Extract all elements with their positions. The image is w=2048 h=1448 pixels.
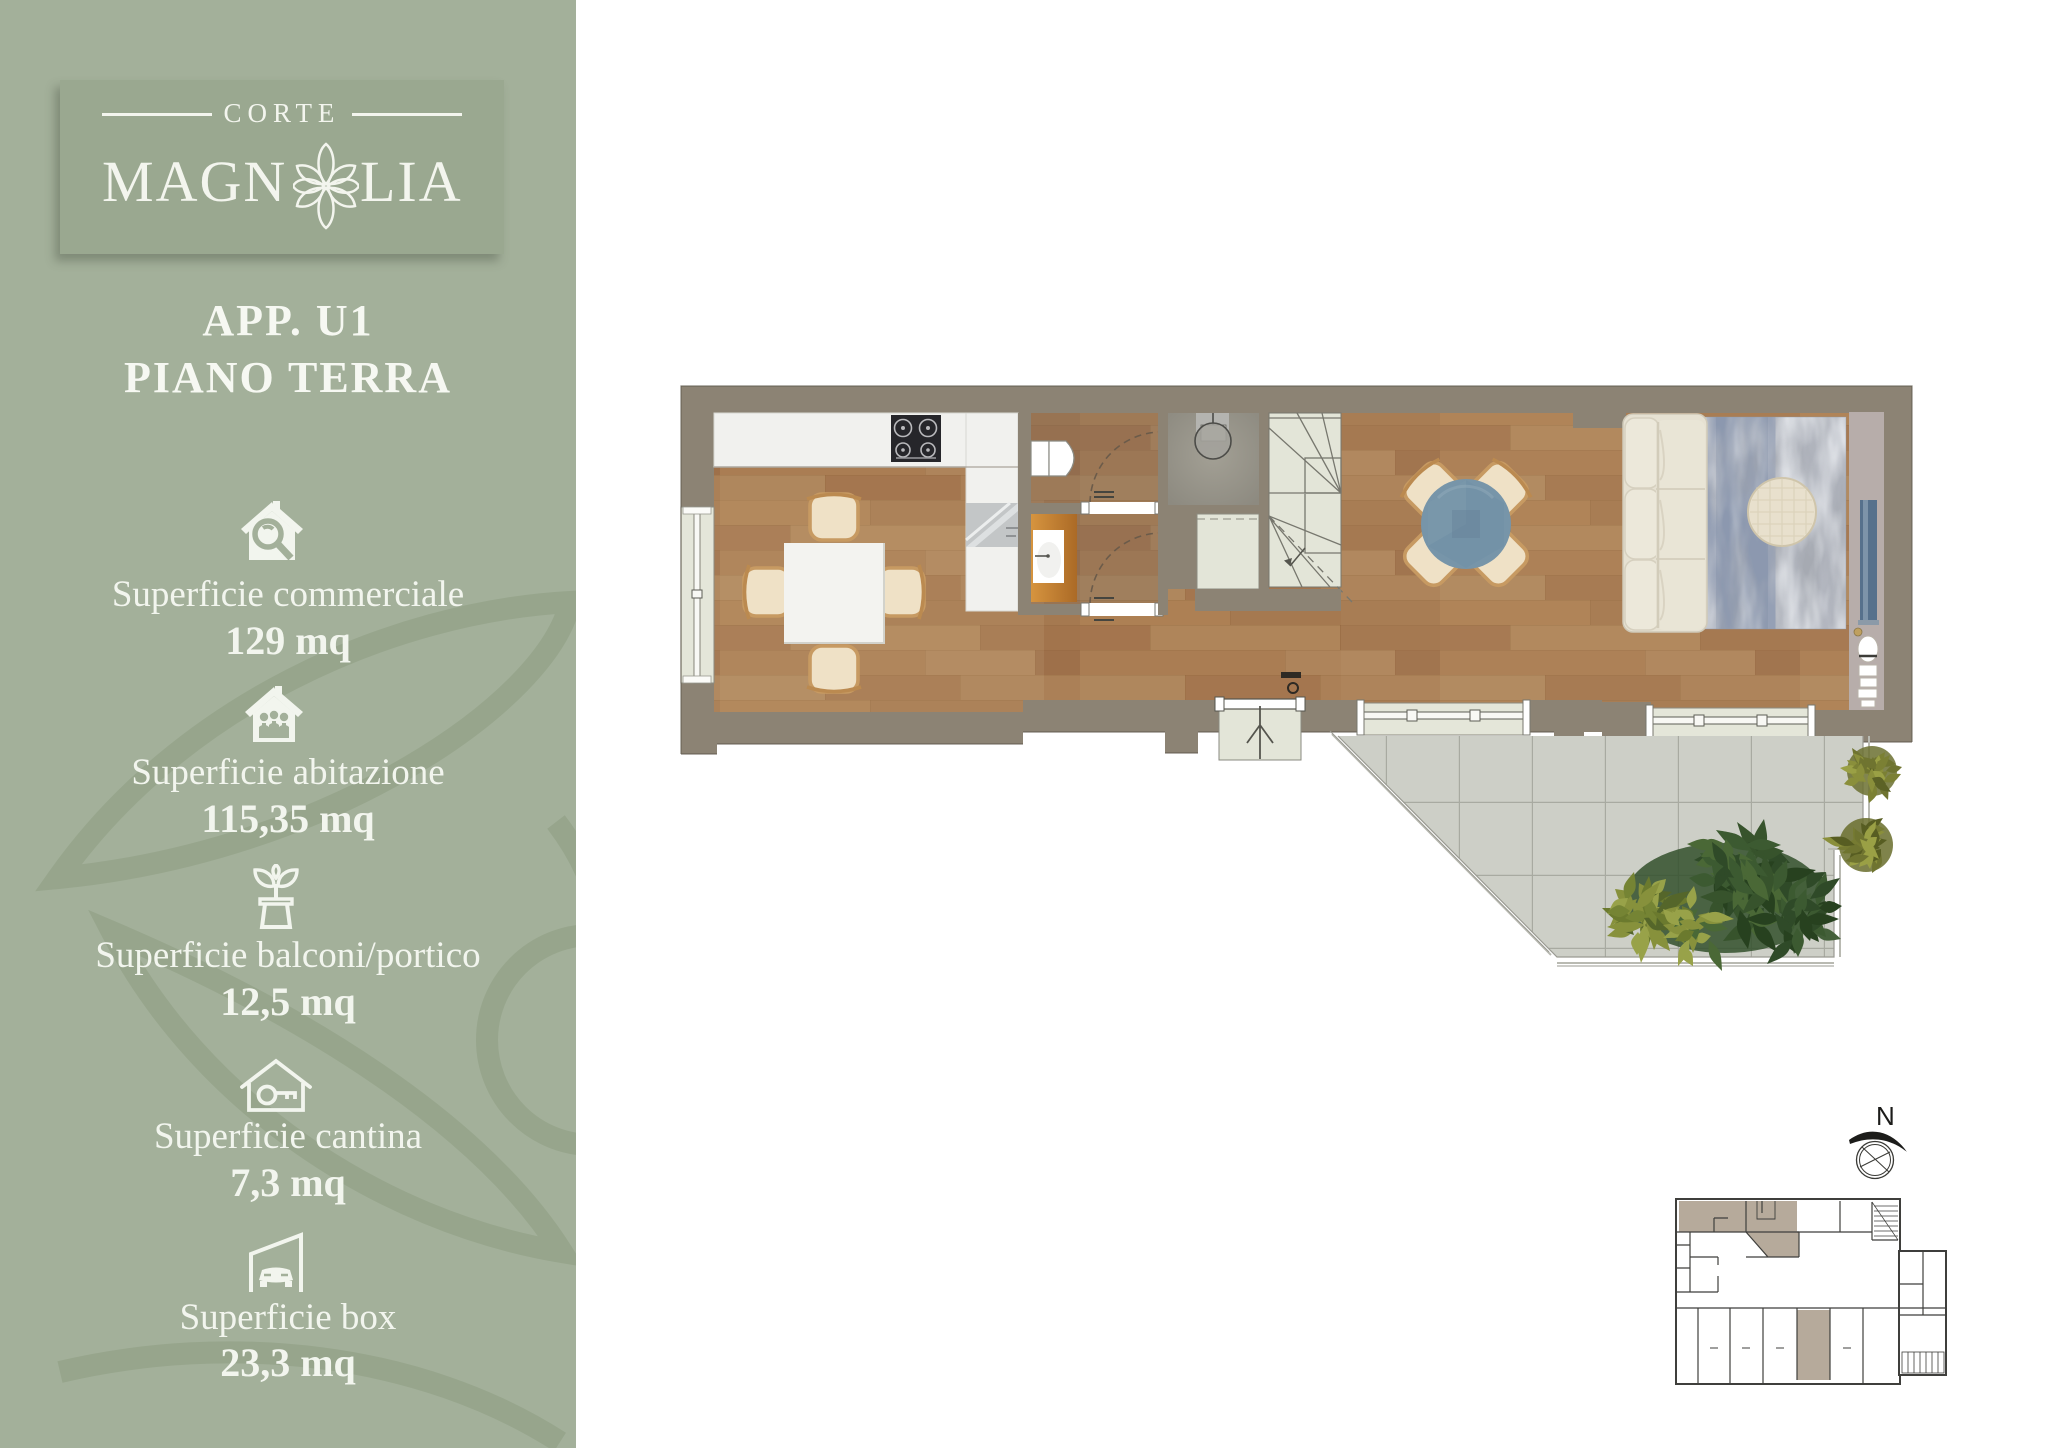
svg-text:N: N xyxy=(1876,1101,1895,1131)
